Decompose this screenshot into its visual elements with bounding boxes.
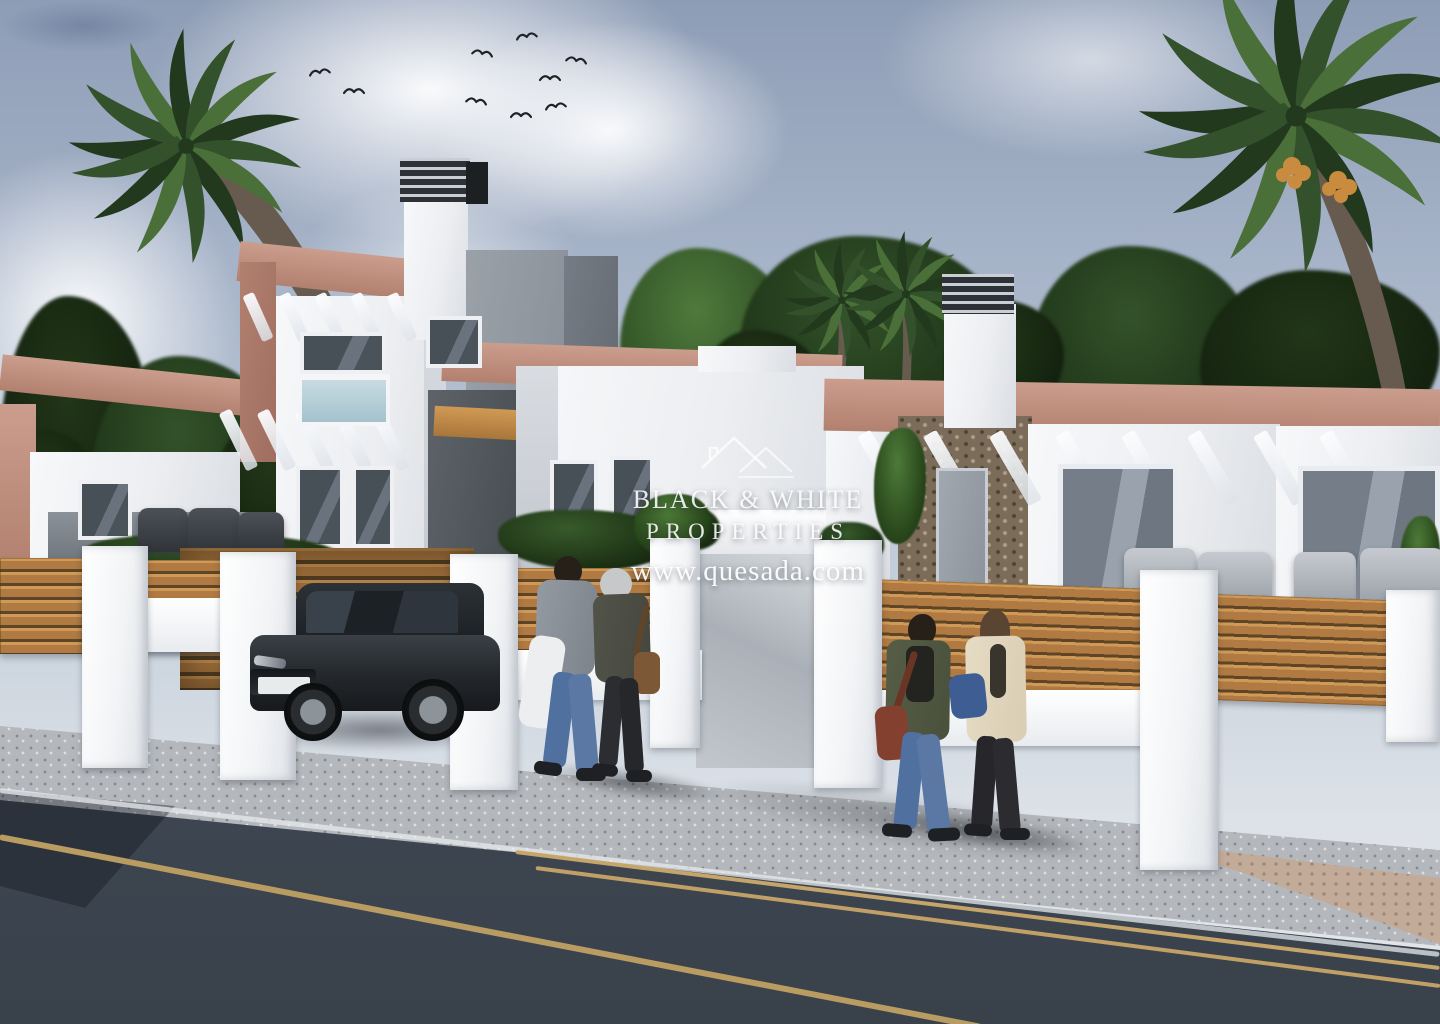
window-dark xyxy=(300,332,386,374)
inner-top xyxy=(990,644,1006,698)
pedestrian-woman-dark-coat xyxy=(584,568,670,798)
fence-stone-base xyxy=(150,648,220,772)
watermark: BLACK & WHITE PROPERTIES www.quesada.com xyxy=(598,430,898,588)
hand-bag xyxy=(948,672,988,720)
building-louver xyxy=(400,158,470,202)
shoe xyxy=(881,823,912,839)
leg xyxy=(992,737,1021,834)
building-louver xyxy=(942,274,1014,314)
fence-pillar xyxy=(82,546,148,768)
shoe xyxy=(1000,828,1030,840)
building-woodbeam xyxy=(433,406,520,440)
building-white xyxy=(944,304,1016,428)
parked-suv xyxy=(250,583,508,747)
property-render-image: BLACK & WHITE PROPERTIES www.quesada.com xyxy=(0,0,1440,1024)
window-dark xyxy=(426,316,482,368)
suv-front-wheel xyxy=(284,683,342,741)
building-white xyxy=(698,346,796,372)
pedestrian-beige-cardigan xyxy=(950,606,1044,840)
suv-windows xyxy=(306,591,458,633)
watermark-roof-logo-icon xyxy=(698,430,798,480)
watermark-brand-line2: PROPERTIES xyxy=(598,519,898,545)
window-dark xyxy=(78,480,132,540)
leg xyxy=(916,733,951,837)
watermark-brand-line1: BLACK & WHITE xyxy=(598,485,898,515)
shoe xyxy=(626,770,652,782)
fence-pillar xyxy=(1386,590,1440,742)
building-black xyxy=(466,162,488,204)
fence-stone-base xyxy=(0,642,82,772)
window-dark xyxy=(296,466,344,548)
shoe xyxy=(591,763,618,778)
shoe xyxy=(964,823,993,837)
window-dark xyxy=(352,466,394,548)
fence-pillar xyxy=(1140,570,1218,870)
watermark-url: www.quesada.com xyxy=(598,555,898,588)
terrace-furniture xyxy=(238,512,284,552)
suv-rear-wheel xyxy=(402,679,464,741)
window-door xyxy=(936,468,988,594)
shoe xyxy=(533,760,563,777)
window-blue xyxy=(298,374,390,426)
